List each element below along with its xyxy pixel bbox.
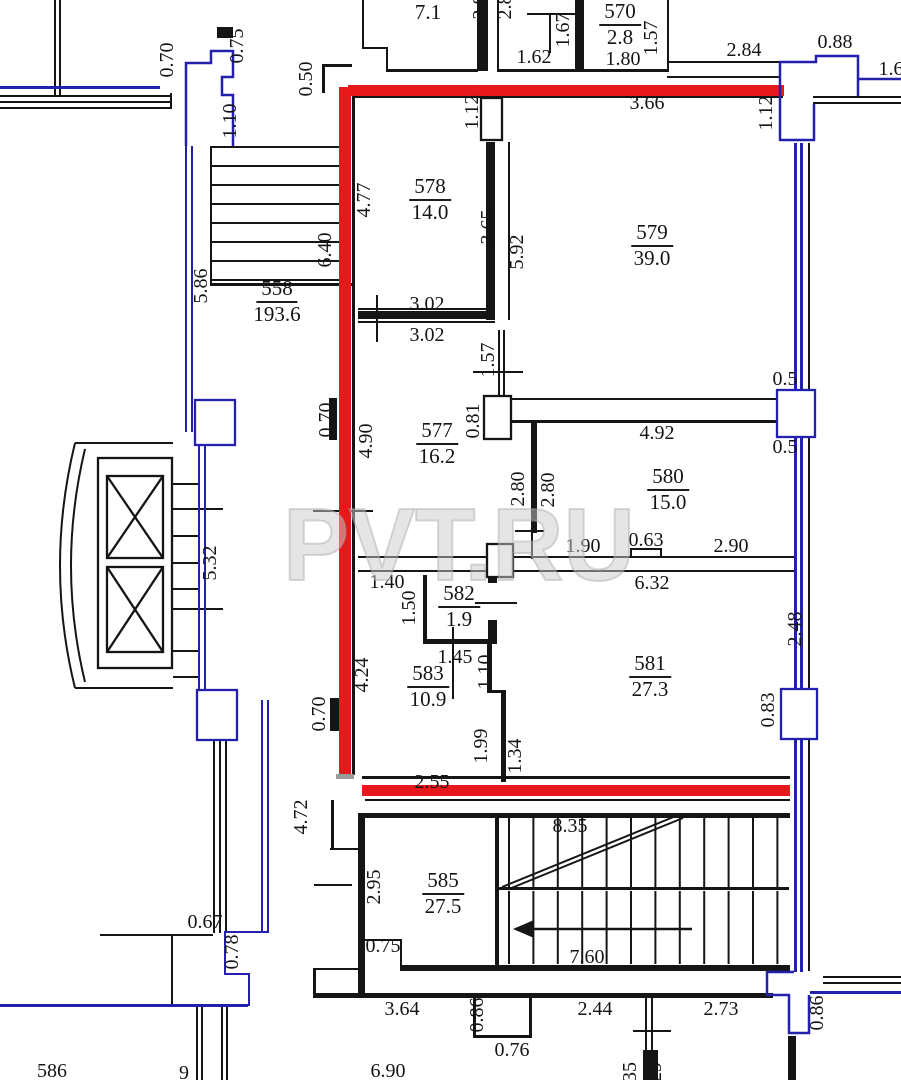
dimension-label: 1.12: [462, 95, 482, 130]
dimension-label: 2.8: [495, 0, 515, 20]
dimension-label: 1.67: [553, 13, 573, 48]
room-area: 39.0: [631, 247, 673, 270]
room-label: 5702.8: [599, 0, 641, 49]
dimension-label: 2.90: [714, 536, 749, 556]
room-label: 58127.3: [629, 652, 671, 701]
dimension-label: 1.50: [399, 591, 419, 626]
dimension-label: 1.12: [756, 96, 776, 131]
floor-plan: 0.700.751.100.501.621.671.801.572.840.88…: [0, 0, 901, 1080]
dimension-label: 35: [620, 1062, 640, 1080]
room-number: 580: [647, 465, 689, 491]
room-number: 578: [409, 175, 451, 201]
dimension-label: 1.10: [475, 655, 495, 690]
dimension-label: 6.40: [315, 233, 335, 268]
room-label: 558193.6: [253, 277, 300, 326]
room-area: 15.0: [647, 491, 689, 514]
dimension-label: 5.86: [191, 269, 211, 304]
dimension-label: 0.5: [773, 369, 798, 389]
dimension-label: 0.81: [463, 404, 483, 439]
room-number: 570: [599, 0, 641, 26]
dimension-label: 3.02: [410, 294, 445, 314]
dimension-label: 1.99: [471, 729, 491, 764]
room-area: 10.9: [407, 688, 449, 711]
dimension-label: 0.70: [309, 697, 329, 732]
room-label: 58527.5: [422, 869, 464, 918]
dimension-label: 1.34: [505, 739, 525, 774]
dimension-label: 4.90: [356, 424, 376, 459]
room-area: 14.0: [409, 201, 451, 224]
room-number: 583: [407, 662, 449, 688]
dimension-label: 0.88: [818, 32, 853, 52]
dimension-label: 6.90: [371, 1061, 406, 1080]
room-area: 1.9: [438, 608, 480, 631]
dimension-label: 1.10: [220, 104, 240, 139]
dimension-label: 0.63: [629, 530, 664, 550]
dimension-label: 2.48: [785, 612, 805, 647]
room-label: 58015.0: [647, 465, 689, 514]
room-label: 57716.2: [416, 419, 458, 468]
dimension-label: 0.75: [227, 29, 247, 64]
dimension-label: 0.70: [157, 43, 177, 78]
dimension-label: 1.62: [517, 47, 552, 67]
room-label: 58310.9: [407, 662, 449, 711]
dimension-label: 0.70: [316, 403, 336, 438]
room-area: 193.6: [253, 303, 300, 326]
dimension-label: 0.50: [296, 62, 316, 97]
dimension-label: 3.66: [630, 93, 665, 113]
dimension-label: 2.80: [508, 472, 528, 507]
dimension-label: 4.77: [354, 183, 374, 218]
dimension-label: 2.80: [538, 473, 558, 508]
dimension-label: 4.24: [352, 658, 372, 693]
room-area: 16.2: [416, 445, 458, 468]
room-label: 5821.9: [438, 582, 480, 631]
dimension-label: 8.35: [553, 816, 588, 836]
room-number: 558: [256, 277, 298, 303]
floorplan-labels: 0.700.751.100.501.621.671.801.572.840.88…: [0, 0, 901, 1080]
room-label: 57939.0: [631, 221, 673, 270]
room-number: 581: [629, 652, 671, 678]
dimension-label: 0.83: [758, 693, 778, 728]
dimension-label: 1.90: [566, 536, 601, 556]
dimension-label: 0.76: [495, 1040, 530, 1060]
room-area: 27.3: [629, 678, 671, 701]
dimension-label: 29: [645, 1062, 665, 1080]
dimension-label: 0.67: [188, 912, 223, 932]
room-area: 7.1: [410, 0, 446, 24]
dimension-label: 9: [179, 1063, 189, 1080]
dimension-label: 1.57: [478, 343, 498, 378]
dimension-label: 1.6: [879, 59, 901, 79]
dimension-label: 0.75: [366, 936, 401, 956]
dimension-label: 0.78: [222, 935, 242, 970]
dimension-label: 2.84: [727, 40, 762, 60]
dimension-label: 7.60: [570, 947, 605, 967]
dimension-label: 586: [37, 1061, 67, 1080]
dimension-label: 0.86: [807, 996, 827, 1031]
dimension-label: 4.72: [291, 800, 311, 835]
dimension-label: 5.92: [507, 235, 527, 270]
room-number: 579: [631, 221, 673, 247]
room-number: 585: [422, 869, 464, 895]
dimension-label: 5.32: [200, 546, 220, 581]
dimension-label: 2.95: [364, 870, 384, 905]
dimension-label: 3.64: [385, 999, 420, 1019]
room-label: 7.1: [410, 0, 446, 24]
dimension-label: 2.44: [578, 999, 613, 1019]
dimension-label: 3.65: [478, 210, 498, 245]
dimension-label: 2.73: [704, 999, 739, 1019]
dimension-label: 0.5: [773, 437, 798, 457]
room-number: 577: [416, 419, 458, 445]
dimension-label: 6.32: [635, 573, 670, 593]
dimension-label: 1.80: [606, 49, 641, 69]
room-label: 57814.0: [409, 175, 451, 224]
room-area: 2.8: [599, 26, 641, 49]
dimension-label: 2.55: [415, 772, 450, 792]
dimension-label: 1.40: [370, 572, 405, 592]
dimension-label: 1.57: [641, 21, 661, 56]
dimension-label: 3.02: [410, 325, 445, 345]
dimension-label: 0.86: [467, 998, 487, 1033]
dimension-label: 4.92: [640, 423, 675, 443]
room-area: 27.5: [422, 895, 464, 918]
room-number: 582: [438, 582, 480, 608]
dimension-label: 2.8: [470, 0, 490, 20]
